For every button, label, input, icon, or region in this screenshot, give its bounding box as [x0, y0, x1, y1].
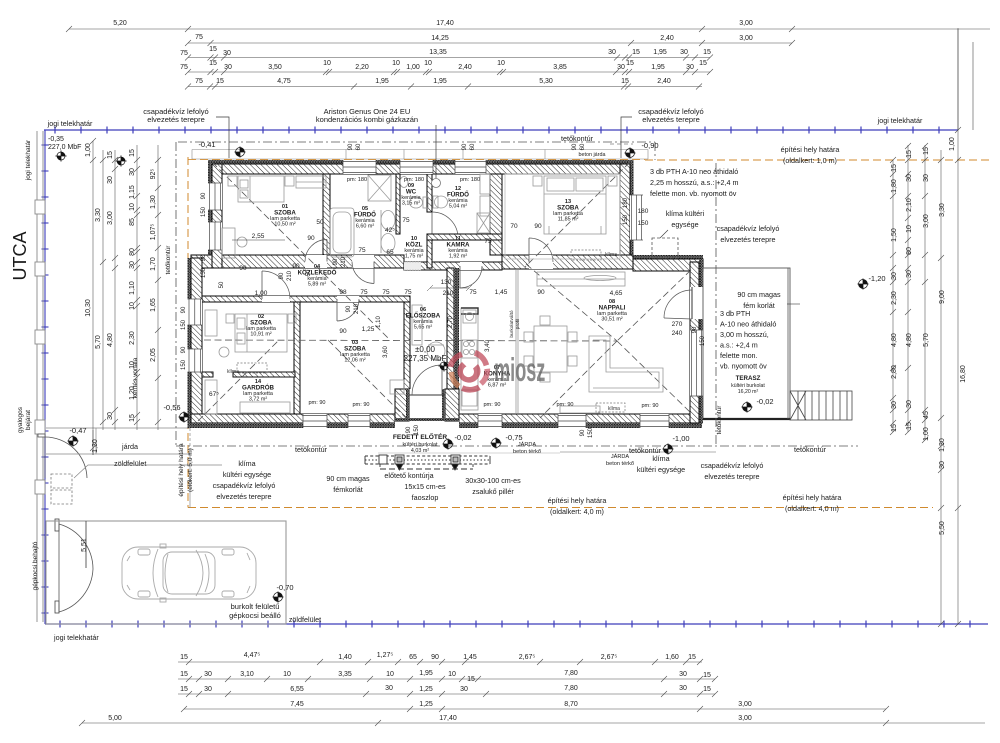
- svg-text:1,60: 1,60: [665, 654, 679, 661]
- svg-text:klíma: klíma: [227, 369, 239, 375]
- svg-text:pm: 180: pm: 180: [347, 177, 367, 183]
- svg-text:15: 15: [209, 60, 217, 67]
- svg-text:92⁵: 92⁵: [150, 169, 157, 180]
- svg-text:5,04 m²: 5,04 m²: [449, 204, 467, 210]
- svg-text:3,00: 3,00: [739, 35, 753, 42]
- svg-text:98: 98: [339, 289, 347, 296]
- svg-text:42⁵: 42⁵: [385, 227, 395, 234]
- svg-text:90: 90: [346, 305, 352, 312]
- svg-text:30: 30: [129, 261, 136, 269]
- svg-text:75: 75: [180, 64, 188, 71]
- svg-text:1,10: 1,10: [376, 316, 382, 328]
- svg-text:11,85 m²: 11,85 m²: [558, 217, 579, 223]
- svg-text:60: 60: [356, 143, 362, 150]
- svg-text:30: 30: [204, 671, 212, 678]
- svg-text:(előkert: 5,0 m): (előkert: 5,0 m): [187, 448, 194, 492]
- svg-text:15: 15: [180, 654, 188, 661]
- svg-text:2,40: 2,40: [657, 78, 671, 85]
- svg-text:3,30: 3,30: [939, 203, 946, 217]
- svg-text:60: 60: [470, 143, 476, 150]
- svg-text:15: 15: [180, 671, 188, 678]
- svg-text:30: 30: [129, 168, 136, 176]
- svg-text:15: 15: [891, 164, 898, 172]
- svg-text:90: 90: [406, 426, 412, 433]
- svg-text:zöldfelület: zöldfelület: [289, 615, 321, 624]
- svg-text:15: 15: [703, 49, 711, 56]
- svg-text:5,70: 5,70: [95, 335, 102, 349]
- svg-text:150: 150: [638, 220, 649, 227]
- svg-text:150: 150: [414, 424, 420, 435]
- svg-text:75: 75: [469, 289, 477, 296]
- svg-text:130: 130: [441, 279, 452, 286]
- svg-text:kondenzációs kombi gázkazán: kondenzációs kombi gázkazán: [316, 115, 418, 124]
- svg-text:10: 10: [906, 225, 913, 233]
- svg-text:17,40: 17,40: [436, 20, 454, 27]
- svg-text:1,10: 1,10: [129, 281, 136, 295]
- svg-text:pm: 90: pm: 90: [483, 402, 500, 408]
- svg-text:építési hely határa: építési hely határa: [548, 496, 607, 505]
- svg-text:1,95: 1,95: [419, 670, 433, 677]
- svg-text:3 db PTH: 3 db PTH: [720, 309, 750, 318]
- svg-text:felette mon. vb. nyomott öv: felette mon. vb. nyomott öv: [650, 189, 737, 198]
- svg-text:a.s.: +2,4 m: a.s.: +2,4 m: [720, 341, 758, 350]
- svg-text:90: 90: [201, 192, 207, 199]
- svg-text:15: 15: [467, 676, 475, 683]
- svg-text:90: 90: [348, 143, 354, 150]
- svg-text:30: 30: [939, 461, 946, 469]
- svg-text:-1,00: -1,00: [672, 434, 689, 443]
- svg-text:1,25: 1,25: [419, 701, 433, 708]
- svg-text:A-10 neo áthidaló: A-10 neo áthidaló: [720, 320, 776, 329]
- svg-text:10: 10: [129, 203, 136, 211]
- svg-text:FEDETT ELŐTÉR: FEDETT ELŐTÉR: [393, 432, 447, 441]
- svg-text:pm: 180: pm: 180: [460, 177, 480, 183]
- svg-text:2,55: 2,55: [252, 233, 265, 240]
- svg-text:14,25: 14,25: [431, 35, 449, 42]
- svg-text:60: 60: [580, 143, 586, 150]
- svg-text:2,70: 2,70: [448, 316, 454, 328]
- svg-text:16,80: 16,80: [960, 365, 967, 383]
- svg-text:16,20 m²: 16,20 m²: [738, 389, 759, 395]
- svg-text:beton térkő: beton térkő: [606, 461, 634, 467]
- svg-text:klíma: klíma: [238, 459, 255, 468]
- svg-text:1,45: 1,45: [463, 654, 477, 661]
- svg-text:2,67⁵: 2,67⁵: [601, 654, 618, 661]
- svg-text:15: 15: [180, 686, 188, 693]
- svg-text:30: 30: [224, 64, 232, 71]
- svg-text:1,15: 1,15: [129, 185, 136, 199]
- svg-text:90: 90: [181, 346, 187, 353]
- svg-text:elvezetés terepre: elvezetés terepre: [216, 492, 271, 501]
- svg-text:1,00: 1,00: [406, 64, 420, 71]
- svg-text:30: 30: [385, 685, 393, 692]
- svg-text:3,15 m²: 3,15 m²: [402, 201, 420, 207]
- svg-text:90: 90: [307, 235, 315, 242]
- svg-text:13,35: 13,35: [429, 49, 447, 56]
- svg-text:1,40: 1,40: [338, 654, 352, 661]
- svg-text:-0,35: -0,35: [48, 136, 64, 143]
- svg-text:10: 10: [386, 671, 394, 678]
- svg-text:elvezetés terepre: elvezetés terepre: [720, 235, 775, 244]
- svg-text:2,25 m hosszú, a.s.: +2,4 m: 2,25 m hosszú, a.s.: +2,4 m: [650, 178, 739, 187]
- svg-text:5,70: 5,70: [923, 333, 930, 347]
- svg-text:burkolatváltó: burkolatváltó: [509, 310, 515, 338]
- svg-text:3,35: 3,35: [338, 671, 352, 678]
- svg-text:jogi telekhatár: jogi telekhatár: [53, 633, 99, 642]
- svg-text:10: 10: [448, 671, 456, 678]
- svg-text:3,60: 3,60: [383, 346, 389, 358]
- svg-text:gépkocsi behajtó: gépkocsi behajtó: [32, 541, 39, 590]
- svg-text:15: 15: [891, 424, 898, 432]
- svg-text:30: 30: [680, 49, 688, 56]
- svg-text:JÁRDA: JÁRDA: [518, 441, 537, 448]
- svg-text:15: 15: [688, 654, 696, 661]
- svg-text:tetőkontúr: tetőkontúr: [165, 245, 172, 275]
- svg-text:pm: 90: pm: 90: [352, 402, 369, 408]
- svg-text:15: 15: [129, 149, 136, 157]
- svg-text:210: 210: [287, 270, 293, 281]
- svg-text:pm: 90: pm: 90: [556, 402, 573, 408]
- svg-text:klíma: klíma: [652, 454, 669, 463]
- svg-text:15: 15: [107, 151, 114, 159]
- svg-text:3,00: 3,00: [923, 214, 930, 228]
- svg-text:15: 15: [129, 414, 136, 422]
- svg-text:30: 30: [679, 685, 687, 692]
- svg-text:90: 90: [279, 272, 285, 279]
- svg-text:75: 75: [404, 289, 412, 296]
- svg-text:1,30: 1,30: [939, 438, 946, 452]
- svg-text:6,60 m²: 6,60 m²: [356, 224, 374, 230]
- svg-text:1,50: 1,50: [891, 228, 898, 242]
- svg-text:30: 30: [460, 686, 468, 693]
- svg-text:10: 10: [424, 60, 432, 67]
- svg-text:4,65: 4,65: [610, 290, 623, 297]
- svg-text:227,35 MbF: 227,35 MbF: [404, 354, 447, 363]
- svg-text:4,80: 4,80: [906, 333, 913, 347]
- svg-text:30: 30: [608, 49, 616, 56]
- svg-text:1,45: 1,45: [495, 289, 508, 296]
- svg-text:(oldalkert: 4,0 m): (oldalkert: 4,0 m): [785, 504, 839, 513]
- svg-text:építési hely határa: építési hely határa: [783, 493, 842, 502]
- svg-text:75: 75: [180, 50, 188, 57]
- svg-text:90: 90: [537, 289, 545, 296]
- svg-text:150: 150: [623, 214, 629, 225]
- svg-text:30: 30: [223, 50, 231, 57]
- svg-text:15: 15: [216, 78, 224, 85]
- svg-text:3,10: 3,10: [240, 671, 254, 678]
- svg-text:90: 90: [431, 654, 439, 661]
- svg-text:50: 50: [219, 281, 225, 288]
- svg-text:egysége: egysége: [671, 220, 698, 229]
- svg-text:3,72 m²: 3,72 m²: [249, 397, 267, 403]
- svg-text:profil: profil: [515, 319, 521, 329]
- svg-text:3,00: 3,00: [739, 20, 753, 27]
- svg-text:3,00 m hosszú,: 3,00 m hosszú,: [720, 330, 769, 339]
- svg-text:30: 30: [617, 64, 625, 71]
- svg-text:1,25: 1,25: [419, 686, 433, 693]
- svg-text:75: 75: [195, 34, 203, 41]
- svg-text:10,91 m²: 10,91 m²: [250, 332, 271, 338]
- svg-text:45: 45: [923, 411, 930, 419]
- svg-text:70: 70: [510, 223, 518, 230]
- svg-text:1,30: 1,30: [150, 195, 157, 209]
- svg-text:2,40: 2,40: [660, 35, 674, 42]
- svg-text:5,65 m²: 5,65 m²: [414, 325, 432, 331]
- svg-text:3,40: 3,40: [485, 340, 491, 352]
- svg-text:3,50: 3,50: [268, 64, 282, 71]
- svg-text:180: 180: [638, 208, 649, 215]
- svg-text:kültéri egysége: kültéri egysége: [223, 470, 271, 479]
- svg-text:1,95: 1,95: [375, 78, 389, 85]
- svg-text:4,47⁵: 4,47⁵: [244, 652, 261, 659]
- svg-text:3,85: 3,85: [553, 64, 567, 71]
- svg-text:30,51 m²: 30,51 m²: [601, 317, 622, 323]
- svg-text:15: 15: [703, 686, 711, 693]
- svg-text:-0,70: -0,70: [276, 583, 293, 592]
- svg-text:1,30: 1,30: [92, 439, 99, 453]
- svg-text:67⁵: 67⁵: [209, 391, 219, 398]
- svg-text:1,07⁵: 1,07⁵: [150, 224, 157, 241]
- svg-text:65: 65: [386, 249, 394, 256]
- svg-text:15: 15: [699, 60, 707, 67]
- svg-text:zöldfelület: zöldfelület: [114, 459, 146, 468]
- svg-text:15: 15: [906, 422, 913, 430]
- svg-text:±0,00: ±0,00: [415, 345, 436, 354]
- svg-text:150: 150: [588, 427, 594, 438]
- svg-text:15: 15: [632, 49, 640, 56]
- svg-text:90: 90: [534, 223, 542, 230]
- svg-text:10,30: 10,30: [85, 299, 92, 317]
- svg-text:10,50 m²: 10,50 m²: [274, 222, 295, 228]
- svg-text:3,00: 3,00: [107, 211, 114, 225]
- svg-text:gépkocsi beálló: gépkocsi beálló: [229, 611, 281, 620]
- svg-text:1,00: 1,00: [923, 427, 930, 441]
- svg-text:75: 75: [382, 289, 390, 296]
- svg-text:1,27⁵: 1,27⁵: [377, 652, 394, 659]
- svg-text:5,30: 5,30: [539, 78, 553, 85]
- svg-text:2,40: 2,40: [458, 64, 472, 71]
- svg-text:15x15 cm-es: 15x15 cm-es: [404, 482, 446, 491]
- svg-text:80: 80: [906, 247, 913, 255]
- svg-text:150: 150: [201, 267, 207, 278]
- svg-text:1,65: 1,65: [150, 298, 157, 312]
- svg-text:12,06 m²: 12,06 m²: [344, 358, 365, 364]
- svg-text:előtető kontúrja: előtető kontúrja: [384, 471, 433, 480]
- svg-text:építési hely határa: építési hely határa: [178, 443, 185, 497]
- svg-text:30: 30: [891, 401, 898, 409]
- svg-text:pm: 90: pm: 90: [641, 403, 658, 409]
- svg-text:75: 75: [195, 78, 203, 85]
- svg-text:90: 90: [239, 265, 247, 272]
- svg-text:30: 30: [923, 174, 930, 182]
- svg-text:jogi telekhatár: jogi telekhatár: [877, 116, 923, 125]
- svg-text:1,00: 1,00: [255, 290, 268, 297]
- svg-text:3 db PTH A-10 neo áthidaló: 3 db PTH A-10 neo áthidaló: [650, 167, 738, 176]
- svg-text:10: 10: [497, 60, 505, 67]
- svg-text:15: 15: [703, 672, 711, 679]
- svg-text:75: 75: [484, 238, 492, 245]
- svg-text:bejárat: bejárat: [25, 410, 32, 430]
- svg-text:felette mon.: felette mon.: [720, 351, 758, 360]
- svg-text:pm: 180: pm: 180: [404, 177, 424, 183]
- svg-text:30: 30: [891, 272, 898, 280]
- svg-text:1,75 m²: 1,75 m²: [405, 254, 423, 260]
- svg-text:tetőkontúr: tetőkontúr: [716, 405, 723, 435]
- svg-text:90: 90: [339, 328, 347, 335]
- svg-text:4,03 m²: 4,03 m²: [411, 448, 429, 454]
- svg-text:zsalukő pillér: zsalukő pillér: [472, 487, 514, 496]
- svg-text:miosz: miosz: [494, 351, 545, 388]
- svg-text:kültéri egysége: kültéri egysége: [637, 465, 685, 474]
- svg-text:-0,02: -0,02: [454, 433, 471, 442]
- svg-text:4,80: 4,80: [891, 333, 898, 347]
- svg-text:17,40: 17,40: [439, 715, 457, 722]
- svg-text:1,25: 1,25: [362, 326, 375, 333]
- svg-text:vb. nyomott öv: vb. nyomott öv: [720, 362, 767, 371]
- svg-text:jogi telekhatár: jogi telekhatár: [25, 139, 32, 181]
- svg-text:5,51: 5,51: [81, 538, 88, 552]
- svg-text:elvezetés terepre: elvezetés terepre: [704, 472, 759, 481]
- svg-text:15: 15: [209, 46, 217, 53]
- svg-text:2,05: 2,05: [150, 348, 157, 362]
- svg-text:150: 150: [201, 206, 207, 217]
- svg-text:beton térkő: beton térkő: [513, 449, 541, 455]
- svg-text:210: 210: [354, 303, 360, 314]
- svg-text:3,00: 3,00: [738, 701, 752, 708]
- svg-text:90: 90: [333, 258, 339, 265]
- svg-text:270: 270: [672, 321, 683, 328]
- svg-text:tetőkontúr: tetőkontúr: [561, 134, 594, 143]
- svg-text:1,92 m²: 1,92 m²: [449, 254, 467, 260]
- svg-text:2,30: 2,30: [891, 291, 898, 305]
- svg-text:30: 30: [906, 400, 913, 408]
- svg-text:90: 90: [181, 306, 187, 313]
- svg-text:5,00: 5,00: [108, 715, 122, 722]
- svg-text:2,67⁵: 2,67⁵: [519, 654, 536, 661]
- svg-text:180: 180: [623, 197, 629, 208]
- svg-text:3,30: 3,30: [95, 208, 102, 222]
- svg-text:75: 75: [402, 217, 410, 224]
- svg-text:90: 90: [580, 429, 586, 436]
- svg-text:90: 90: [292, 263, 300, 270]
- svg-text:15: 15: [621, 78, 629, 85]
- svg-text:2,80: 2,80: [891, 365, 898, 379]
- svg-text:1,95: 1,95: [651, 64, 665, 71]
- svg-text:5,20: 5,20: [113, 20, 127, 27]
- svg-text:2,20: 2,20: [355, 64, 369, 71]
- svg-text:240: 240: [672, 330, 683, 337]
- svg-text:15: 15: [626, 60, 634, 67]
- svg-text:7,45: 7,45: [290, 701, 304, 708]
- svg-text:30: 30: [906, 270, 913, 278]
- svg-text:10: 10: [129, 302, 136, 310]
- svg-text:210: 210: [443, 290, 454, 297]
- svg-text:beton járda: beton járda: [579, 152, 606, 158]
- svg-text:7,80: 7,80: [564, 685, 578, 692]
- svg-text:klíma: klíma: [608, 406, 620, 412]
- svg-text:85: 85: [129, 218, 136, 226]
- svg-text:1,95: 1,95: [433, 78, 447, 85]
- svg-text:építési hely határa: építési hely határa: [781, 145, 840, 154]
- svg-text:7,80: 7,80: [564, 670, 578, 677]
- svg-text:90 cm magas: 90 cm magas: [737, 290, 781, 299]
- svg-text:30: 30: [686, 64, 694, 71]
- svg-text:(oldalkert: 1,0 m): (oldalkert: 1,0 m): [783, 156, 837, 165]
- svg-text:pm: 90: pm: 90: [308, 400, 325, 406]
- svg-text:-1,20: -1,20: [868, 274, 885, 283]
- svg-text:-0,75: -0,75: [505, 433, 522, 442]
- svg-text:150: 150: [700, 335, 706, 346]
- svg-text:50: 50: [306, 269, 312, 276]
- svg-text:tetőkontúr: tetőkontúr: [794, 445, 827, 454]
- svg-text:50: 50: [316, 219, 324, 226]
- svg-text:-0,41: -0,41: [198, 140, 215, 149]
- svg-text:15: 15: [923, 147, 930, 155]
- svg-text:10: 10: [323, 60, 331, 67]
- svg-text:TERASZ: TERASZ: [736, 375, 761, 382]
- svg-text:klíma: klíma: [605, 252, 617, 258]
- svg-text:90: 90: [692, 326, 698, 333]
- svg-text:90: 90: [462, 143, 468, 150]
- svg-text:-0,90: -0,90: [641, 141, 658, 150]
- svg-text:5,89 m²: 5,89 m²: [308, 282, 326, 288]
- svg-text:faoszlop: faoszlop: [412, 493, 439, 502]
- svg-text:30: 30: [107, 412, 114, 420]
- svg-text:15: 15: [906, 150, 913, 158]
- svg-text:1,80: 1,80: [891, 179, 898, 193]
- svg-text:150: 150: [181, 319, 187, 330]
- svg-text:jogi telekhatár: jogi telekhatár: [47, 119, 93, 128]
- svg-text:1,70: 1,70: [150, 257, 157, 271]
- svg-text:csapadékvíz lefolyó: csapadékvíz lefolyó: [701, 461, 764, 470]
- svg-text:1,95: 1,95: [653, 49, 667, 56]
- svg-text:gyalogos: gyalogos: [17, 406, 24, 433]
- svg-text:(oldalkert: 4,0 m): (oldalkert: 4,0 m): [550, 507, 604, 516]
- svg-text:fémkorlát: fémkorlát: [333, 485, 363, 494]
- svg-text:227,0 MbF: 227,0 MbF: [48, 144, 81, 151]
- svg-text:90 cm magas: 90 cm magas: [326, 474, 370, 483]
- svg-text:UTCA: UTCA: [10, 232, 30, 281]
- svg-text:90: 90: [572, 143, 578, 150]
- svg-text:4,80: 4,80: [107, 333, 114, 347]
- svg-text:30: 30: [679, 671, 687, 678]
- svg-text:csapadékvíz lefolyó: csapadékvíz lefolyó: [717, 224, 780, 233]
- svg-text:1,00: 1,00: [949, 137, 956, 151]
- svg-text:6,55: 6,55: [290, 686, 304, 693]
- svg-text:10: 10: [283, 671, 291, 678]
- svg-text:2,10: 2,10: [906, 198, 913, 212]
- svg-text:JÁRDA: JÁRDA: [611, 453, 630, 460]
- svg-text:80: 80: [129, 248, 136, 256]
- svg-text:járda: járda: [121, 442, 138, 451]
- svg-text:90: 90: [201, 254, 207, 261]
- svg-text:-0,47: -0,47: [69, 426, 86, 435]
- svg-text:3,00: 3,00: [738, 715, 752, 722]
- svg-text:65: 65: [409, 654, 417, 661]
- svg-text:30: 30: [204, 686, 212, 693]
- svg-text:csapadékvíz lefolyó: csapadékvíz lefolyó: [213, 481, 276, 490]
- svg-text:150: 150: [181, 359, 187, 370]
- svg-text:elvezetés terepre: elvezetés terepre: [642, 115, 700, 124]
- svg-text:tetőkontúr: tetőkontúr: [295, 445, 328, 454]
- svg-text:10: 10: [392, 60, 400, 67]
- svg-text:9,00: 9,00: [939, 290, 946, 304]
- svg-text:4,75: 4,75: [277, 78, 291, 85]
- svg-text:1,00: 1,00: [85, 143, 92, 157]
- svg-text:klíma kültéri: klíma kültéri: [666, 209, 705, 218]
- svg-text:30: 30: [107, 176, 114, 184]
- svg-text:75: 75: [358, 247, 366, 254]
